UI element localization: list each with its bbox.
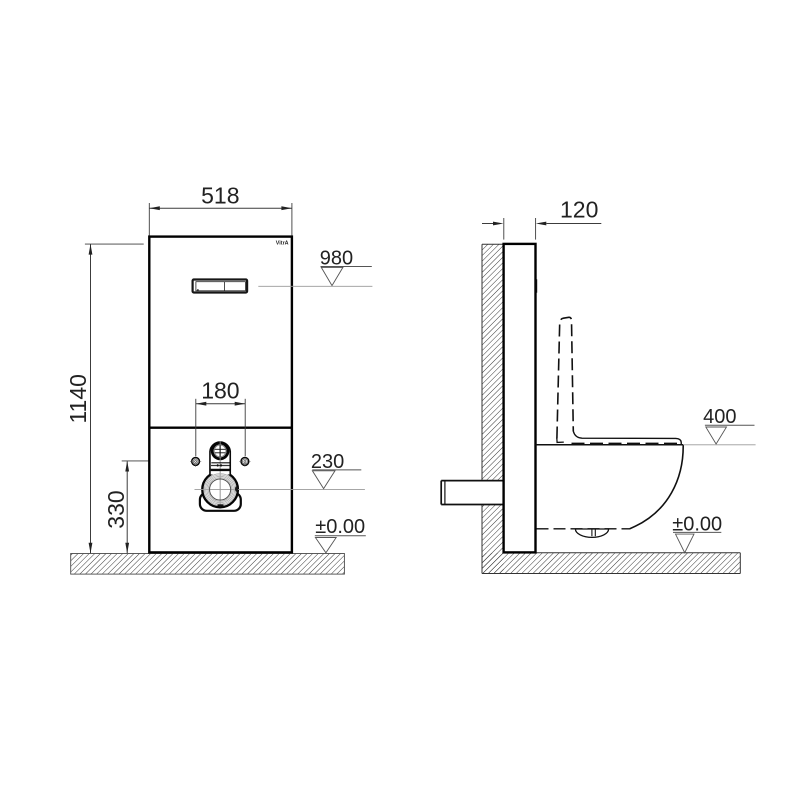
svg-text:120: 120: [560, 196, 598, 222]
svg-text:180: 180: [201, 377, 239, 403]
svg-text:330: 330: [103, 490, 129, 528]
svg-text:518: 518: [201, 183, 239, 209]
svg-text:±0.00: ±0.00: [315, 516, 365, 538]
svg-text:1140: 1140: [65, 374, 91, 423]
svg-text:VitrA: VitrA: [276, 241, 289, 247]
svg-text:400: 400: [703, 406, 736, 428]
